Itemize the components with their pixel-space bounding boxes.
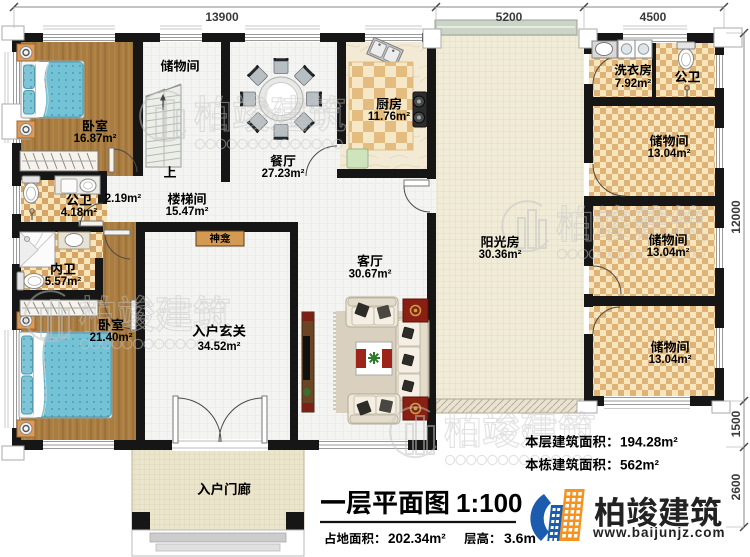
- svg-text:15.47m²: 15.47m²: [166, 206, 209, 218]
- svg-text:3.6m: 3.6m: [504, 530, 536, 546]
- svg-text:13.04m²: 13.04m²: [647, 247, 690, 259]
- svg-text:2600: 2600: [729, 473, 743, 500]
- svg-text:11.76m²: 11.76m²: [368, 111, 410, 123]
- svg-text:4500: 4500: [640, 10, 667, 24]
- svg-text:30.36m²: 30.36m²: [479, 249, 522, 261]
- svg-text:1:100: 1:100: [456, 488, 523, 518]
- svg-text:13.04m²: 13.04m²: [649, 354, 692, 366]
- svg-text:194.28m²: 194.28m²: [620, 435, 678, 450]
- svg-text:21.40m²: 21.40m²: [90, 332, 133, 344]
- svg-text:27.23m²: 27.23m²: [262, 168, 305, 180]
- svg-text:16.87m²: 16.87m²: [74, 133, 117, 145]
- svg-text:5.57m²: 5.57m²: [45, 276, 82, 288]
- svg-text:7.92m²: 7.92m²: [615, 78, 652, 90]
- svg-text:2.19m²: 2.19m²: [105, 193, 142, 205]
- svg-text:4.18m²: 4.18m²: [61, 207, 98, 219]
- svg-text:34.52m²: 34.52m²: [198, 341, 241, 353]
- svg-text:12000: 12000: [729, 200, 743, 234]
- svg-text:5200: 5200: [496, 10, 523, 24]
- svg-text:202.34m²: 202.34m²: [388, 531, 446, 546]
- svg-text:www.baijunjz.com: www.baijunjz.com: [592, 525, 726, 540]
- svg-text:1500: 1500: [729, 410, 743, 437]
- svg-text:30.67m²: 30.67m²: [349, 269, 392, 281]
- svg-text:13900: 13900: [205, 10, 239, 24]
- svg-text:562m²: 562m²: [620, 458, 660, 473]
- svg-text:13.04m²: 13.04m²: [648, 148, 691, 160]
